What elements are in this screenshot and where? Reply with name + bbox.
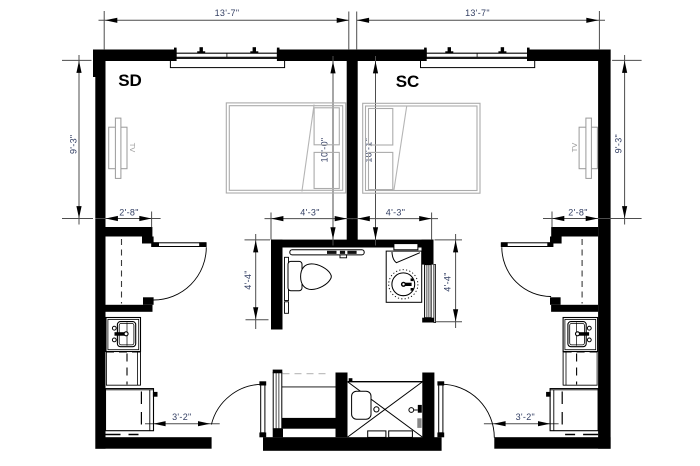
- svg-text:9'-3": 9'-3": [613, 134, 623, 153]
- svg-text:SD: SD: [118, 71, 142, 90]
- svg-text:9'-3": 9'-3": [69, 135, 79, 154]
- svg-text:13'-7": 13'-7": [215, 8, 240, 18]
- svg-text:13'-7": 13'-7": [465, 8, 490, 18]
- svg-text:4'-3": 4'-3": [386, 208, 405, 218]
- svg-text:SC: SC: [396, 72, 420, 91]
- svg-text:TV: TV: [128, 143, 137, 153]
- svg-text:2'-8": 2'-8": [568, 207, 587, 217]
- svg-text:4'-3": 4'-3": [300, 208, 319, 218]
- svg-text:2'-8": 2'-8": [119, 207, 138, 217]
- svg-text:4'-4": 4'-4": [443, 272, 453, 291]
- svg-text:TV: TV: [570, 143, 579, 153]
- svg-text:3'-2": 3'-2": [172, 412, 191, 422]
- svg-text:4'-4": 4'-4": [243, 270, 253, 289]
- svg-text:10'-0": 10'-0": [319, 138, 329, 163]
- svg-text:3'-2": 3'-2": [516, 412, 535, 422]
